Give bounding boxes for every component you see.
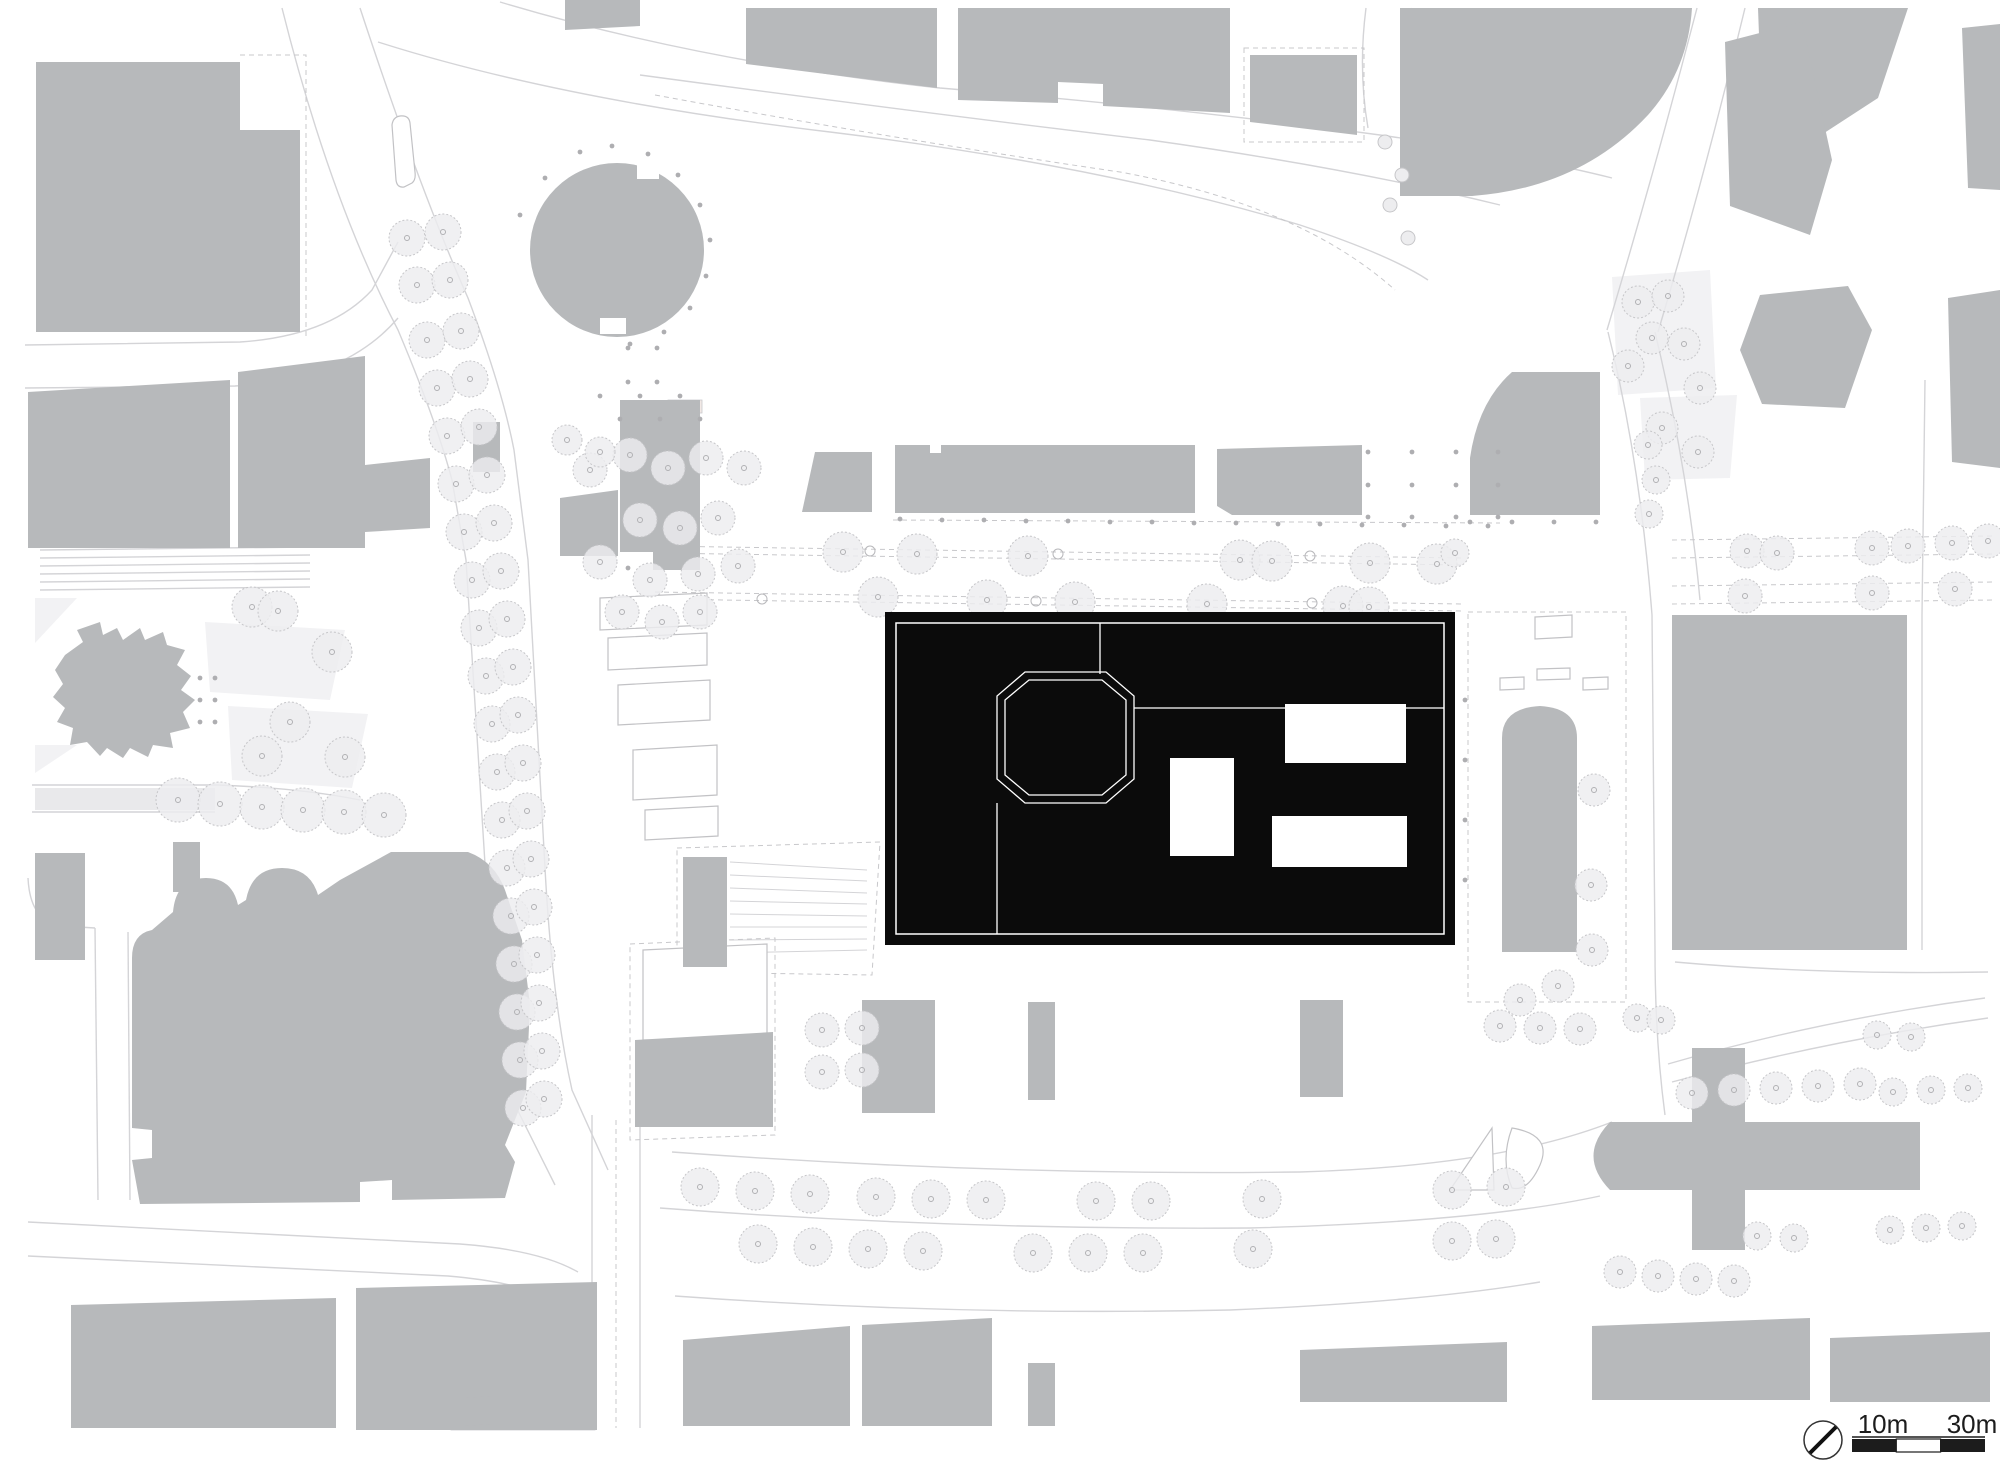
tree: [1948, 1212, 1976, 1240]
tree: [1718, 1074, 1750, 1106]
building: [238, 356, 365, 548]
tree: [1780, 1224, 1808, 1252]
plaza-area: [35, 745, 77, 773]
bollard-dot: [213, 698, 218, 703]
outlined-object: [392, 116, 415, 187]
bollard-dot: [1496, 515, 1501, 520]
building: [1740, 286, 1872, 408]
tree: [1564, 1013, 1596, 1045]
road-line: [40, 587, 310, 590]
bollard-dot: [198, 720, 203, 725]
bollard-dot: [1192, 521, 1197, 526]
tree: [1642, 1260, 1674, 1292]
tree: [325, 737, 365, 777]
project-courtyard: [1272, 816, 1407, 867]
tree: [1576, 934, 1608, 966]
building: [365, 458, 430, 532]
tree: [1604, 1256, 1636, 1288]
bollard-dot: [518, 213, 523, 218]
tree: [432, 262, 468, 298]
tree: [1682, 436, 1714, 468]
building: [958, 8, 1230, 113]
bollard-dot: [658, 417, 663, 422]
tree: [1935, 526, 1969, 560]
bollard-dot: [1410, 515, 1415, 520]
tree: [1730, 534, 1764, 568]
bollard-dot: [626, 380, 631, 385]
bollard-dot: [1463, 878, 1468, 883]
building: [1672, 615, 1907, 950]
bollard-dot: [698, 417, 703, 422]
tree: [1433, 1171, 1471, 1209]
tree: [1912, 1214, 1940, 1242]
tree: [1680, 1263, 1712, 1295]
tree: [242, 736, 282, 776]
building: [28, 380, 230, 548]
building: [802, 452, 872, 512]
tree: [645, 605, 679, 639]
tree: [270, 702, 310, 742]
road-line: [1362, 8, 1368, 128]
tree: [701, 501, 735, 535]
tree: [1647, 1006, 1675, 1034]
tree: [1642, 466, 1670, 494]
bollard-dot: [1276, 522, 1281, 527]
building: [1502, 706, 1577, 952]
dashed-line: [655, 546, 1462, 558]
bollard-dot: [1318, 522, 1323, 527]
building: [746, 8, 937, 88]
scale-bar-segment-10-20: [1896, 1439, 1940, 1452]
bollard-dot: [1410, 483, 1415, 488]
bollard-dot: [628, 342, 633, 347]
amphitheater-step-line: [730, 901, 867, 904]
bollard-dot: [610, 144, 615, 149]
bollard-dot: [1066, 519, 1071, 524]
tree: [683, 595, 717, 629]
bollard-dot: [198, 676, 203, 681]
tree: [585, 437, 615, 467]
road-line: [40, 563, 310, 566]
bollard-dot: [704, 274, 709, 279]
drum-notch: [600, 318, 626, 334]
tree: [904, 1232, 942, 1270]
tree: [739, 1225, 777, 1263]
tree: [526, 1081, 562, 1117]
tree: [1484, 1010, 1516, 1042]
tree: [452, 361, 488, 397]
tree: [897, 534, 937, 574]
tree: [495, 649, 531, 685]
bollard-dot: [678, 394, 683, 399]
building: [464, 1396, 492, 1426]
tree: [1636, 322, 1668, 354]
bollard-dot: [638, 394, 643, 399]
tree: [419, 370, 455, 406]
tree: [1718, 1265, 1750, 1297]
tree: [1652, 280, 1684, 312]
drum-building: [530, 163, 704, 337]
tree: [312, 632, 352, 672]
tree: [1855, 531, 1889, 565]
tree: [583, 545, 617, 579]
bollard-dot: [688, 306, 693, 311]
building: [173, 842, 200, 892]
road-line: [40, 571, 310, 574]
building: [132, 852, 530, 1204]
tree: [681, 1168, 719, 1206]
lamp-symbol: [757, 594, 767, 604]
tree: [805, 1055, 839, 1089]
tree: [623, 503, 657, 537]
bollard-dot: [655, 380, 660, 385]
tree: [1760, 1072, 1792, 1104]
church-building: [53, 622, 195, 758]
tree: [505, 745, 541, 781]
bollard-dot: [1463, 818, 1468, 823]
bollard-dot: [1108, 520, 1113, 525]
bollard-dot: [1366, 515, 1371, 520]
tree: [258, 591, 298, 631]
north-arrow-icon: [1804, 1421, 1842, 1459]
tree: [516, 889, 552, 925]
tree: [1234, 1230, 1272, 1268]
tree: [1069, 1234, 1107, 1272]
tree: [483, 553, 519, 589]
plan-layers: [25, 0, 2000, 1430]
tree: [967, 1181, 1005, 1219]
tree: [1612, 350, 1644, 382]
bollard-dot: [598, 394, 603, 399]
tree: [1252, 541, 1292, 581]
tree: [1014, 1234, 1052, 1272]
tree: [1938, 572, 1972, 606]
tree: [1676, 1077, 1708, 1109]
tree: [605, 595, 639, 629]
tree: [1728, 579, 1762, 613]
outlined-object: [1535, 615, 1572, 639]
tree: [805, 1013, 839, 1047]
amphitheater-step-line: [730, 888, 867, 893]
tree: [1855, 576, 1889, 610]
outlined-object: [618, 680, 710, 725]
road-line: [40, 579, 310, 582]
building: [1250, 55, 1357, 135]
shrub: [1383, 198, 1397, 212]
tree: [281, 788, 325, 832]
building: [1028, 1363, 1055, 1426]
tree: [409, 322, 445, 358]
tree: [823, 532, 863, 572]
tree: [1124, 1234, 1162, 1272]
tree: [1441, 539, 1469, 567]
tree: [912, 1180, 950, 1218]
tree: [613, 438, 647, 472]
tree: [1487, 1168, 1525, 1206]
bollard-dot: [1024, 519, 1029, 524]
road-line: [28, 1222, 578, 1272]
tree: [1802, 1070, 1834, 1102]
building: [1300, 1000, 1343, 1097]
bollard-dot: [1454, 483, 1459, 488]
lamp-symbol: [865, 546, 875, 556]
building: [504, 1354, 536, 1400]
tree: [1897, 1023, 1925, 1051]
building: [620, 400, 700, 570]
bollard-dot: [543, 176, 548, 181]
bollard-dot: [213, 676, 218, 681]
building: [895, 445, 1195, 513]
building: [1470, 372, 1600, 515]
tree: [389, 220, 425, 256]
tree: [1684, 372, 1716, 404]
tree: [500, 697, 536, 733]
tree: [857, 1178, 895, 1216]
project-courtyard: [1285, 704, 1406, 763]
amphitheater-step-line: [730, 862, 867, 870]
bollard-dot: [898, 517, 903, 522]
tree: [240, 785, 284, 829]
building: [35, 853, 85, 960]
bollard-dot: [646, 152, 651, 157]
tree: [791, 1175, 829, 1213]
building: [36, 62, 300, 332]
road-line: [40, 555, 310, 558]
tree: [443, 313, 479, 349]
tree: [1879, 1078, 1907, 1106]
tree: [845, 1011, 879, 1045]
building: [635, 1032, 773, 1127]
tree: [524, 1033, 560, 1069]
bollard-dot: [1366, 450, 1371, 455]
tree: [736, 1172, 774, 1210]
tree: [1954, 1074, 1982, 1102]
bollard-dot: [1366, 483, 1371, 488]
tree: [1578, 774, 1610, 806]
tree: [1844, 1068, 1876, 1100]
tree: [519, 937, 555, 973]
tree: [1743, 1222, 1771, 1250]
building: [565, 0, 640, 30]
tree: [633, 563, 667, 597]
tree: [794, 1228, 832, 1266]
tree: [513, 841, 549, 877]
bollard-dot: [213, 720, 218, 725]
tree: [322, 790, 366, 834]
bollard-dot: [982, 518, 987, 523]
tree: [663, 511, 697, 545]
bollard-dot: [708, 238, 713, 243]
bollard-dot: [1463, 758, 1468, 763]
scale-bar: 10m 30m: [1852, 1409, 1997, 1452]
road-line: [95, 928, 98, 1200]
north-arrow-needle: [1810, 1427, 1836, 1453]
plaza-area: [35, 598, 77, 643]
lamp-symbol: [1307, 598, 1317, 608]
building: [1028, 1002, 1055, 1100]
bollard-dot: [1234, 521, 1239, 526]
building: [468, 1328, 508, 1354]
tree: [552, 425, 582, 455]
tree: [1575, 869, 1607, 901]
bollard-dot: [1552, 520, 1557, 525]
tree: [681, 557, 715, 591]
bollard-dot: [1496, 483, 1501, 488]
shrub: [1378, 135, 1392, 149]
tree: [651, 451, 685, 485]
tree: [469, 457, 505, 493]
tree: [849, 1230, 887, 1268]
tree: [509, 793, 545, 829]
tree: [429, 418, 465, 454]
outlined-object: [1500, 677, 1524, 690]
tree: [1243, 1180, 1281, 1218]
amphitheater-step-line: [730, 875, 867, 881]
bollard-dot: [1594, 520, 1599, 525]
building: [683, 1326, 850, 1426]
project-courtyard: [1170, 758, 1234, 856]
tree: [1635, 500, 1663, 528]
tree: [1350, 543, 1390, 583]
building: [1948, 290, 2000, 468]
tree: [1917, 1076, 1945, 1104]
outlined-object: [1537, 668, 1570, 680]
tree: [727, 451, 761, 485]
tree: [156, 778, 200, 822]
tree: [461, 409, 497, 445]
tree: [1008, 536, 1048, 576]
bollard-dot: [1444, 524, 1449, 529]
building: [1400, 8, 1692, 196]
tree: [521, 985, 557, 1021]
building: [71, 1298, 336, 1428]
outlined-object: [1583, 677, 1608, 690]
tree: [689, 441, 723, 475]
building: [1300, 1342, 1507, 1402]
road-line: [640, 75, 1500, 205]
tree: [1433, 1222, 1471, 1260]
scale-label-10m: 10m: [1858, 1409, 1909, 1439]
building: [683, 857, 727, 967]
tree: [1622, 286, 1654, 318]
tree: [362, 793, 406, 837]
bollard-dot: [940, 518, 945, 523]
tree: [1477, 1220, 1515, 1258]
building: [560, 490, 618, 556]
tree: [1524, 1012, 1556, 1044]
tree: [1542, 970, 1574, 1002]
amphitheater-step-line: [730, 914, 867, 916]
tree: [476, 505, 512, 541]
bollard-dot: [1360, 523, 1365, 528]
scale-bar-segment-0-10: [1852, 1439, 1896, 1452]
tree: [1863, 1021, 1891, 1049]
bollard-dot: [1150, 520, 1155, 525]
building: [1962, 24, 2000, 190]
tree: [1876, 1216, 1904, 1244]
road-line: [128, 932, 130, 1200]
shrub: [1401, 231, 1415, 245]
tree: [425, 214, 461, 250]
building: [1217, 445, 1362, 515]
project-building-layer: [885, 612, 1455, 945]
bollard-dot: [1410, 450, 1415, 455]
bollard-dot: [676, 173, 681, 178]
bollard-dot: [578, 150, 583, 155]
tree: [1668, 328, 1700, 360]
tree: [1634, 431, 1662, 459]
scale-bar-segment-20-30: [1941, 1439, 1985, 1452]
building: [862, 1318, 992, 1426]
bollard-dot: [698, 203, 703, 208]
tree: [399, 267, 435, 303]
bollard-dot: [1510, 520, 1515, 525]
bollard-dot: [1402, 523, 1407, 528]
site-plan: 10m 30m: [0, 0, 2000, 1463]
tree: [1077, 1182, 1115, 1220]
bollard-dot: [1463, 698, 1468, 703]
road-line: [675, 1282, 1540, 1311]
bollard-dot: [618, 417, 623, 422]
tree: [845, 1053, 879, 1087]
outlined-object: [633, 745, 717, 800]
bollard-dot: [198, 698, 203, 703]
building: [1592, 1318, 1810, 1400]
tree: [721, 549, 755, 583]
bollard-dot: [1454, 515, 1459, 520]
road-line: [1922, 380, 1925, 950]
shrub: [1395, 168, 1409, 182]
scale-label-30m: 30m: [1947, 1409, 1998, 1439]
outlined-object: [608, 633, 707, 670]
bollard-dot: [662, 330, 667, 335]
tree: [1504, 984, 1536, 1016]
bollard-dot: [1496, 450, 1501, 455]
road-line: [1675, 962, 1988, 973]
tree: [438, 466, 474, 502]
lamp-symbol: [1053, 549, 1063, 559]
tree: [198, 782, 242, 826]
bollard-dot: [1468, 520, 1473, 525]
bollard-dot: [1454, 450, 1459, 455]
bollard-dot: [626, 566, 631, 571]
bollard-dot: [655, 346, 660, 351]
building: [1830, 1332, 1990, 1402]
tree: [489, 601, 525, 637]
tree: [1132, 1182, 1170, 1220]
bollard-dot: [1486, 524, 1491, 529]
drum-notch: [637, 163, 659, 179]
tree: [1891, 529, 1925, 563]
tree: [858, 577, 898, 617]
tree: [1760, 536, 1794, 570]
outlined-object: [645, 806, 718, 840]
